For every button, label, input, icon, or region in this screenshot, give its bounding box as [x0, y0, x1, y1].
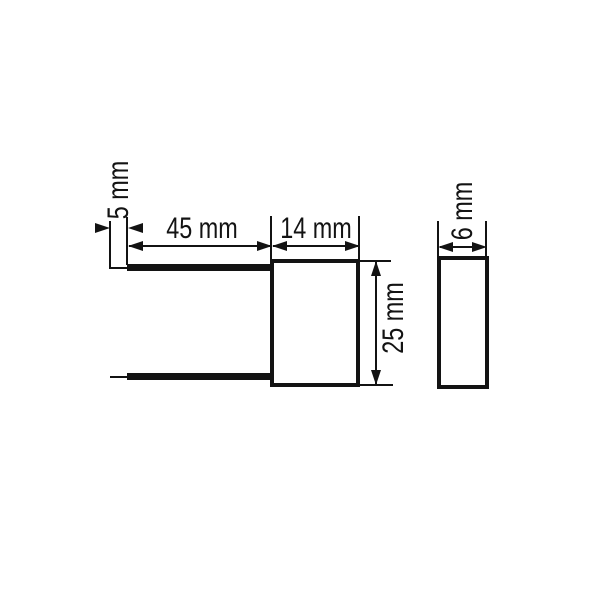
top-lead-tip	[110, 267, 127, 269]
lead-length-dimension-line	[129, 245, 271, 247]
lead-length-arrowhead-left-icon	[128, 241, 143, 251]
body-width-extension-line-right	[358, 216, 360, 261]
side-view-body	[437, 256, 489, 389]
bottom-lead-wire	[127, 373, 273, 380]
body-depth-extension-line-left	[437, 221, 439, 258]
body-width-dimension-label: 14 mm	[280, 214, 352, 244]
lead-tip-arrowhead-left-icon	[128, 223, 143, 233]
body-width-extension-line-left	[270, 216, 272, 261]
front-view-body	[270, 259, 360, 387]
lead-tip-dimension-label: 5 mm	[104, 161, 134, 220]
body-depth-dimension-label: 6 mm	[448, 182, 478, 241]
bottom-lead-tip	[110, 376, 127, 378]
body-depth-arrowhead-right-icon	[472, 242, 487, 252]
body-height-dimension-label: 25 mm	[379, 282, 409, 354]
dimension-drawing: 5 mm 45 mm 14 mm 25 mm 6 mm	[0, 0, 600, 600]
body-depth-extension-line-right	[485, 221, 487, 258]
body-depth-arrowhead-left-icon	[438, 242, 453, 252]
lead-tip-arrowhead-right-icon	[95, 223, 110, 233]
lead-length-dimension-label: 45 mm	[166, 214, 238, 244]
body-height-arrowhead-bottom-icon	[371, 370, 381, 385]
body-height-arrowhead-top-icon	[371, 261, 381, 276]
top-lead-wire	[127, 264, 273, 271]
